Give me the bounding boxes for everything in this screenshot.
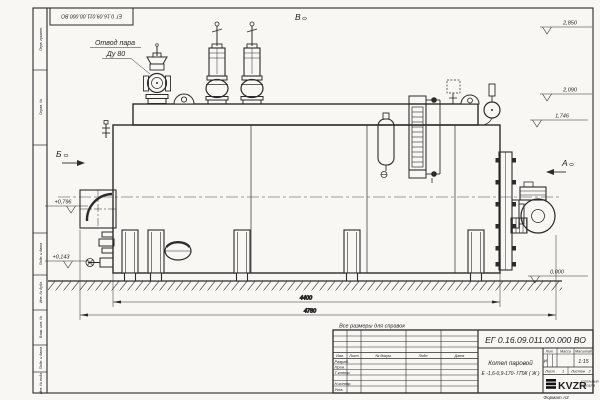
- scale-value: 1:15: [578, 359, 589, 365]
- dimension-4400-value: 4400: [300, 296, 313, 302]
- support-leg: [468, 230, 484, 281]
- view-a-label: А: [561, 158, 568, 168]
- row-tkontr: Т.контр.: [335, 370, 351, 375]
- frame-label-podp-data-1: Подп. и дата: [39, 243, 43, 266]
- mass-label: Масса: [560, 350, 571, 354]
- sheets-label: Листов: [570, 370, 585, 374]
- row-utv: Утв.: [335, 387, 344, 392]
- frame-label-inv-dubl: Инв. № дубл.: [39, 281, 43, 303]
- row-nkontr: Н.контр.: [335, 381, 352, 386]
- view-b-label: Б: [56, 149, 62, 159]
- drawing-canvas: Перв. примен. Справ. № Подп. и дата Инв.…: [0, 0, 600, 400]
- logo-bar-icon: [546, 379, 556, 382]
- frame-label-vzam-inv: Взам. инв. №: [39, 316, 43, 338]
- elevation-2090-value: 2,090: [562, 88, 578, 94]
- title-name-line2: Е -1,6-0,9-170- ГПЖ ( Ж ): [481, 371, 539, 377]
- elevation-1746-value: 1,746: [555, 114, 570, 120]
- elevation-0000-value: 0,000: [550, 270, 565, 276]
- lit-label: Лит.: [545, 350, 554, 354]
- support-leg: [148, 230, 164, 281]
- scale-label: Масштаб: [575, 350, 593, 354]
- row-prov: Пров.: [335, 364, 346, 369]
- header-podp: Подп.: [419, 354, 429, 358]
- support-leg: [234, 230, 250, 281]
- logo-caption-line2: ЗАВОД РФ: [581, 384, 595, 388]
- format-note: Формат А3: [543, 395, 569, 400]
- elevation-0796-value: +0,796: [55, 200, 73, 206]
- frame-label-sprav: Справ. №: [39, 99, 43, 115]
- header-doc: № докум.: [375, 354, 391, 358]
- top-stamp-text: ЕГ 0.16.09.011.00.000 ВО: [61, 13, 122, 19]
- sheet-label: Лист: [544, 370, 555, 374]
- header-list: Лист: [348, 354, 359, 358]
- elevation-0143-value: +0,143: [53, 255, 71, 261]
- header-data: Дата: [454, 354, 465, 358]
- sheet-value: 1: [562, 370, 564, 374]
- row-razrab: Разраб.: [335, 359, 349, 364]
- reference-note: Все размеры для справок: [339, 324, 405, 330]
- dimension-4780-value: 4780: [304, 309, 317, 315]
- title-name-line1: Котел паровой: [488, 360, 533, 367]
- steam-callout-line1: Отвод пара: [95, 39, 135, 47]
- support-leg: [344, 230, 360, 281]
- drawing-sheet: Перв. примен. Справ. № Подп. и дата Инв.…: [0, 0, 600, 400]
- header-izm: Изм.: [336, 354, 344, 358]
- support-leg: [122, 230, 138, 281]
- steam-callout-line2: Ду 80: [106, 51, 125, 58]
- ground-line: [48, 281, 562, 291]
- frame-label-inv-podl: Инв. № подл.: [39, 372, 43, 394]
- frame-label-podp-data-2: Подп. и дата: [39, 347, 43, 370]
- view-v-label: В: [295, 12, 301, 22]
- title-designation: ЕГ 0.16.09.011.00.000 ВО: [485, 335, 586, 345]
- frame-label-perv-primen: Перв. примен.: [39, 27, 43, 51]
- elevation-2850-value: 2,850: [562, 21, 578, 27]
